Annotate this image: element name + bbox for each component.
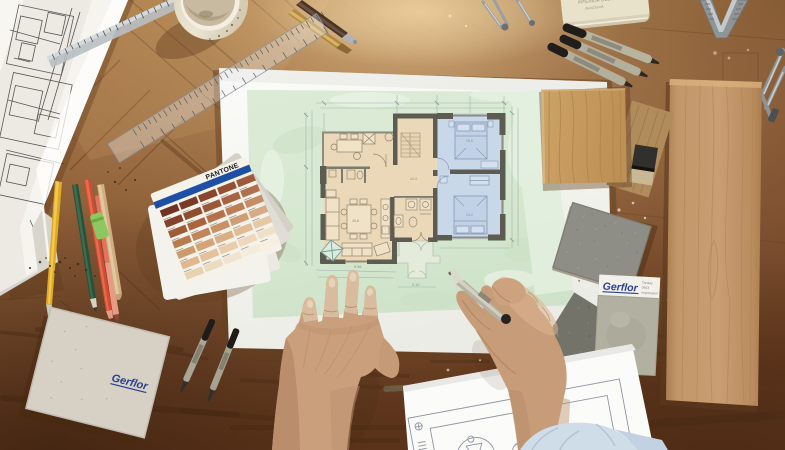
svg-text:15.8: 15.8	[466, 139, 473, 143]
svg-text:5.96: 5.96	[354, 265, 361, 269]
svg-text:2.10: 2.10	[412, 283, 419, 287]
svg-text:0563: 0563	[642, 286, 650, 290]
svg-text:14.2: 14.2	[466, 213, 473, 217]
svg-text:25.6: 25.6	[352, 219, 359, 223]
svg-text:Taralay: Taralay	[642, 281, 653, 286]
svg-text:12.4: 12.4	[410, 177, 417, 181]
